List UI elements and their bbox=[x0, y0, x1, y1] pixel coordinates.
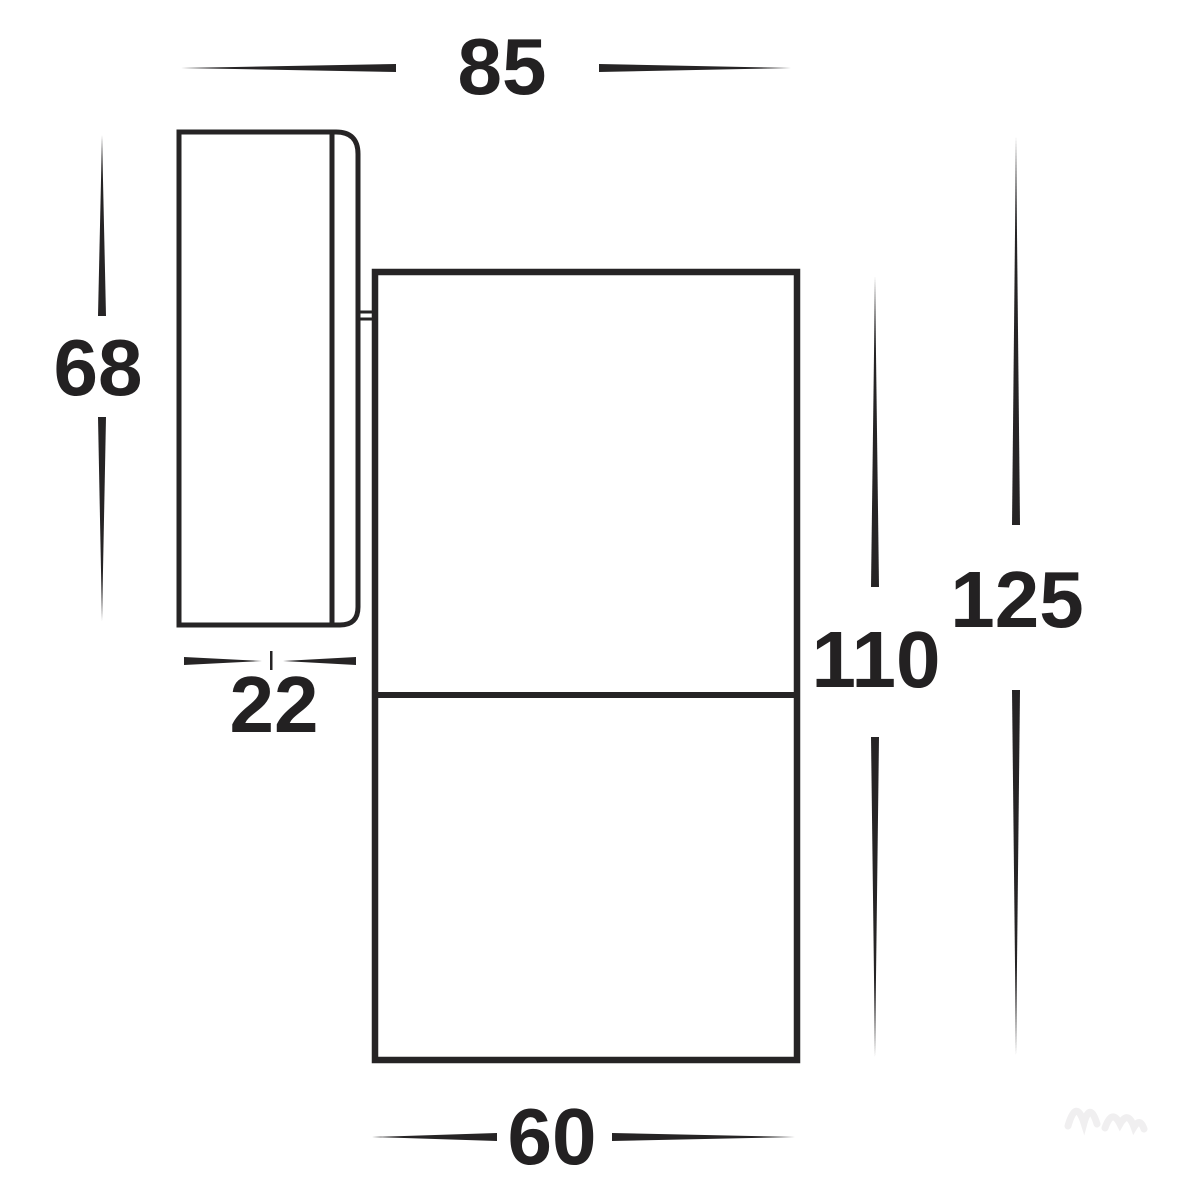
lamp-body-outline bbox=[375, 272, 797, 1060]
dim-label-plate-height: 68 bbox=[54, 328, 143, 408]
dim-label-overall-depth: 85 bbox=[458, 27, 547, 107]
dim-label-body-width: 60 bbox=[508, 1097, 597, 1177]
dim-label-body-height: 110 bbox=[811, 620, 940, 700]
lamp-body bbox=[375, 272, 798, 1060]
dim-label-plate-depth: 22 bbox=[230, 665, 319, 745]
wall-plate-outline bbox=[179, 132, 358, 625]
dimension-diagram: 85 68 22 110 125 60 bbox=[0, 0, 1200, 1200]
watermark-squiggle bbox=[1068, 1111, 1144, 1129]
dim-label-overall-height: 125 bbox=[950, 560, 1083, 640]
